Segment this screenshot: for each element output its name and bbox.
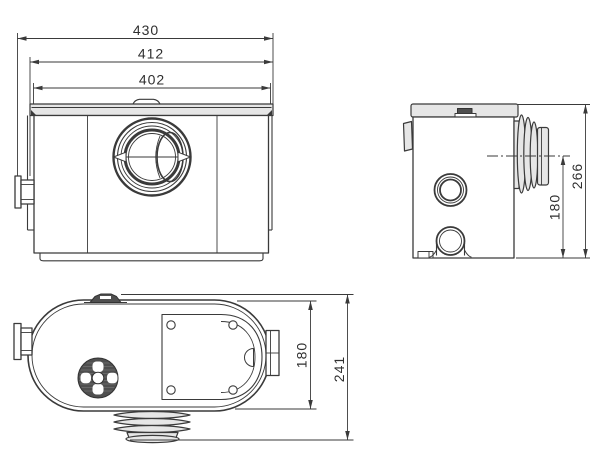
dim-label-266: 266 [569, 163, 585, 189]
dim-label-side-180: 180 [547, 194, 563, 220]
top-right-stub [266, 331, 279, 376]
top-bellows-spigot [114, 412, 190, 443]
top-left-inlet-stub [14, 324, 32, 360]
bellows-outlet [514, 115, 549, 193]
front-view: 430 412 402 [15, 22, 273, 261]
screw-hole [167, 321, 175, 329]
pump-fan-vent [78, 358, 118, 398]
dim-label-412: 412 [138, 46, 164, 62]
screw-hole [229, 386, 237, 394]
technical-drawing-canvas: 430 412 402 [0, 0, 600, 459]
top-clip-bump [84, 294, 127, 303]
front-side-inlet-stub [15, 176, 34, 208]
macerator-pump-drawing: 430 412 402 [0, 0, 600, 459]
dim-label-top-180: 180 [294, 342, 310, 368]
latch-tab [404, 122, 413, 152]
top-view: 180 241 [14, 294, 354, 443]
screw-hole [229, 321, 237, 329]
dim-label-430: 430 [133, 22, 159, 38]
front-lid [30, 99, 273, 115]
lid-handle-bump [133, 99, 160, 104]
screw-hole [167, 386, 175, 394]
front-base-lip [40, 253, 263, 261]
dim-side-outlet-height: 180 [547, 156, 566, 258]
toilet-inlet-port [114, 119, 191, 196]
dim-label-241: 241 [331, 356, 347, 382]
side-view: 180 266 [404, 104, 591, 258]
vent-slot [458, 109, 473, 114]
dim-label-402: 402 [139, 72, 165, 88]
